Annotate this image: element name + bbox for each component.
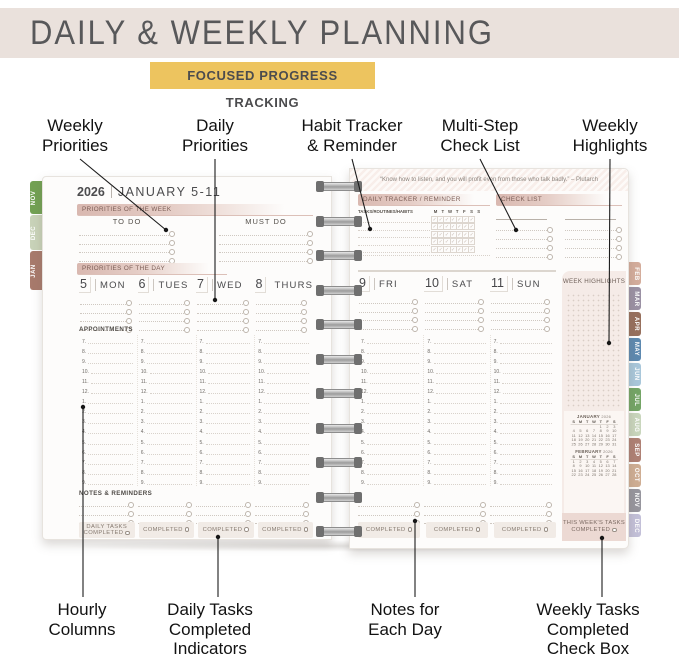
spiral-ring	[316, 320, 362, 329]
priority-line	[219, 245, 307, 254]
notes-line	[358, 498, 414, 507]
mini-calendar-date: 26	[597, 473, 604, 477]
checklist-line	[565, 222, 616, 231]
hour-label: 11.	[361, 379, 368, 385]
hour-writing-line	[88, 353, 133, 354]
hour-writing-line	[206, 484, 251, 485]
month-tab-label: NOV	[31, 190, 37, 205]
day-column: 6TUES	[138, 277, 197, 331]
hour-label: 3.	[494, 419, 498, 425]
daily-tracker-banner: DAILY TRACKER / REMINDER	[358, 194, 490, 206]
writing-line	[139, 314, 185, 323]
hour-row: 9.	[258, 355, 310, 365]
hour-row: 1.	[361, 395, 420, 405]
hour-writing-line	[500, 444, 552, 445]
hour-writing-line	[500, 363, 552, 364]
hour-label: 12.	[82, 389, 89, 395]
hour-label: 1.	[361, 399, 365, 405]
hour-row: 9.	[82, 355, 134, 365]
daily-completed-indicator: COMPLETED	[139, 522, 195, 538]
hour-writing-line	[267, 383, 309, 384]
writing-line	[359, 321, 412, 330]
hour-label: 12.	[494, 389, 501, 395]
hour-writing-line	[434, 464, 486, 465]
hour-label: 7.	[200, 339, 204, 345]
annotation-line: Highlights	[545, 136, 675, 156]
notes-line	[138, 507, 187, 516]
hour-writing-line	[264, 464, 309, 465]
hour-row: 9.	[494, 355, 553, 365]
mustdo-header: MUST DO	[219, 217, 313, 226]
priority-line	[79, 236, 169, 245]
spiral-ring	[316, 286, 362, 295]
hour-label: 5.	[82, 440, 86, 446]
mini-calendar-week: 22232425262728	[567, 473, 621, 477]
annotation-line: Completed	[518, 620, 658, 640]
hour-row: 8.	[141, 345, 193, 355]
hour-writing-line	[206, 363, 251, 364]
hour-label: 9.	[82, 480, 86, 486]
hour-label: 7.	[82, 339, 86, 345]
hour-label: 5.	[361, 440, 365, 446]
header-band: DAILY & WEEKLY PLANNING	[0, 8, 679, 58]
hour-row: 2.	[200, 405, 252, 415]
writing-line	[139, 296, 185, 305]
mini-calendar-date: 31	[611, 442, 618, 446]
mini-calendar-date: 27	[584, 442, 591, 446]
hour-label: 3.	[82, 419, 86, 425]
hour-writing-line	[206, 444, 251, 445]
hour-writing-line	[264, 444, 309, 445]
hour-writing-line	[370, 383, 420, 384]
annotation-weekly-highlights: Weekly Highlights	[545, 116, 675, 155]
annotation-line: Completed	[140, 620, 280, 640]
hour-writing-line	[264, 413, 309, 414]
week-title: 2026 JANUARY 5-11	[77, 185, 221, 199]
hour-writing-line	[436, 373, 485, 374]
month-tab-label: MAR	[633, 291, 639, 306]
hour-row: 9.	[200, 355, 252, 365]
annotation-daily-priorities: Daily Priorities	[150, 116, 280, 155]
hour-writing-line	[370, 393, 419, 394]
priorities-of-week-banner: PRIORITIES OF THE WEEK	[77, 204, 313, 216]
writing-line	[80, 314, 126, 323]
day-header: 5MON	[79, 277, 138, 293]
hour-writing-line	[367, 464, 419, 465]
hour-row: 5.	[494, 435, 553, 445]
writing-line	[491, 304, 544, 313]
hour-writing-line	[434, 454, 486, 455]
daily-tasks-completed-indicator: DAILY TASKSCOMPLETED	[79, 522, 135, 538]
hour-label: 9.	[494, 359, 498, 365]
hour-writing-line	[434, 413, 486, 414]
weekly-tasks-completed-checkbox: THIS WEEK'S TASKS COMPLETED	[562, 513, 626, 541]
hour-label: 10.	[494, 369, 501, 375]
hour-writing-line	[206, 464, 251, 465]
habit-name-line	[358, 231, 430, 238]
hour-writing-line	[434, 484, 486, 485]
habit-name-line	[358, 223, 430, 230]
notes-reminders-label: NOTES & REMINDERS	[79, 490, 152, 497]
hour-writing-line	[147, 454, 192, 455]
hour-row: 12.	[141, 385, 193, 395]
day-number: 10	[424, 276, 443, 292]
hour-label: 7.	[200, 460, 204, 466]
hour-row: 8.	[82, 466, 134, 476]
annotation-line: Hourly	[12, 600, 152, 620]
annotation-weekly-tasks-checkbox: Weekly Tasks Completed Check Box	[518, 600, 658, 655]
hour-label: 8.	[200, 470, 204, 476]
hour-writing-line	[91, 393, 133, 394]
hour-row: 7.	[141, 335, 193, 345]
hour-label: 12.	[361, 389, 368, 395]
day-header: 11SUN	[490, 276, 556, 292]
hour-row: 9.	[141, 476, 193, 486]
habit-extra-line	[358, 255, 490, 256]
hour-row: 6.	[494, 446, 553, 456]
completed-label: COMPLETED	[262, 527, 308, 534]
completed-circle	[185, 527, 190, 532]
hour-writing-line	[367, 474, 419, 475]
hour-row: 3.	[200, 415, 252, 425]
notes-line	[196, 498, 245, 507]
hour-writing-line	[88, 474, 133, 475]
hour-writing-line	[267, 373, 309, 374]
checklist-header-line	[565, 213, 616, 220]
hour-label: 2.	[141, 409, 145, 415]
hour-label: 11.	[82, 379, 89, 385]
annotation-multi-step-check-list: Multi-Step Check List	[415, 116, 545, 155]
todo-list	[79, 227, 175, 262]
hour-row: 2.	[427, 405, 486, 415]
hour-label: 8.	[427, 470, 431, 476]
annotation-line: Indicators	[140, 639, 280, 655]
month-tab-label: APR	[633, 317, 639, 331]
hour-writing-line	[264, 433, 309, 434]
annotation-line: Multi-Step	[415, 116, 545, 136]
writing-line	[139, 322, 185, 331]
completed-label: COMPLETED	[502, 527, 548, 534]
priorities-of-day-banner: PRIORITIES OF THE DAY	[77, 263, 227, 275]
hour-row: 7.	[361, 456, 420, 466]
habit-row: ✓✓✓✓✓✓✓	[358, 246, 490, 253]
day-priority-lines	[490, 292, 556, 330]
hour-row: 12.	[494, 385, 553, 395]
hour-writing-line	[264, 454, 309, 455]
hour-label: 10.	[82, 369, 89, 375]
weekday-initial: T	[439, 209, 446, 214]
notes-column	[490, 498, 556, 524]
hour-writing-line	[500, 484, 552, 485]
completed-circle	[544, 527, 549, 532]
hour-writing-line	[500, 353, 552, 354]
right-day-columns: 9FRI10SAT11SUN	[358, 276, 556, 330]
hour-row: 5.	[258, 435, 310, 445]
habit-name-line	[358, 238, 430, 245]
hour-writing-line	[88, 423, 133, 424]
hour-row: 11.	[141, 375, 193, 385]
day-name: MON	[100, 280, 126, 291]
hour-writing-line	[503, 373, 552, 374]
hour-writing-line	[147, 413, 192, 414]
annotation-line: Notes for	[335, 600, 475, 620]
hour-writing-line	[208, 383, 250, 384]
hour-row: 1.	[494, 395, 553, 405]
mini-calendar-slot: FEBRUARY 2026SMTWTFS12345678910111213141…	[564, 449, 624, 484]
checklist-header-line	[496, 213, 547, 220]
left-notes-rows	[79, 498, 313, 524]
annotation-daily-tasks-completed: Daily Tasks Completed Indicators	[140, 600, 280, 655]
hour-label: 3.	[258, 419, 262, 425]
hour-label: 1.	[82, 399, 86, 405]
hour-row: 9.	[361, 355, 420, 365]
completed-label: COMPLETED	[143, 527, 189, 534]
hour-label: 2.	[200, 409, 204, 415]
hour-writing-line	[434, 444, 486, 445]
hour-writing-line	[503, 393, 552, 394]
hour-row: 1.	[141, 395, 193, 405]
hour-label: 7.	[141, 339, 145, 345]
writing-line	[359, 313, 412, 322]
checklist-line	[565, 249, 616, 258]
writing-line	[256, 314, 302, 323]
habit-row: ✓✓✓✓✓✓✓	[358, 231, 490, 238]
hour-label: 4.	[494, 429, 498, 435]
habit-name-line	[358, 246, 430, 253]
notes-line	[424, 498, 480, 507]
hour-label: 9.	[427, 480, 431, 486]
notes-column	[196, 498, 255, 524]
mini-calendar-date: 22	[570, 473, 577, 477]
hour-row: 7.	[258, 456, 310, 466]
hour-row: 9.	[427, 355, 486, 365]
hour-row: 12.	[361, 385, 420, 395]
hour-writing-line	[434, 423, 486, 424]
hour-label: 6.	[82, 450, 86, 456]
hour-row: 9.	[427, 476, 486, 486]
hour-label: 3.	[141, 419, 145, 425]
writing-line	[425, 321, 478, 330]
writing-line	[80, 296, 126, 305]
notes-line	[424, 507, 480, 516]
annotation-line: Daily Tasks	[140, 600, 280, 620]
year-label: 2026	[77, 185, 105, 199]
hour-writing-line	[147, 444, 192, 445]
hour-writing-line	[434, 474, 486, 475]
right-completed-indicators: COMPLETEDCOMPLETEDCOMPLETED	[358, 522, 556, 538]
month-tab-label: NOV	[633, 493, 639, 508]
completed-circle	[244, 527, 249, 532]
hour-row: 8.	[258, 345, 310, 355]
hour-writing-line	[206, 403, 251, 404]
mini-calendar-slot: JANUARY 2026SMTWTFS123456789101112131415…	[564, 414, 624, 449]
spiral-ring	[316, 217, 362, 226]
hour-row: 4.	[494, 425, 553, 435]
habit-row: ✓✓✓✓✓✓✓	[358, 216, 490, 223]
hour-row: 11.	[82, 375, 134, 385]
hour-row: 2.	[82, 405, 134, 415]
hour-writing-line	[367, 423, 419, 424]
priority-line	[79, 245, 169, 254]
hour-label: 2.	[427, 409, 431, 415]
hour-label: 2.	[361, 409, 365, 415]
hour-writing-line	[264, 423, 309, 424]
habit-name-line	[358, 216, 430, 223]
month-tab-label: DEC	[31, 225, 37, 239]
hour-label: 11.	[258, 379, 265, 385]
left-hourly-columns: 7.8.9.10.11.12.1.2.3.4.5.6.7.8.9.7.8.9.1…	[79, 335, 313, 486]
hour-label: 4.	[200, 429, 204, 435]
hour-row: 3.	[258, 415, 310, 425]
priority-line	[219, 236, 307, 245]
hour-writing-line	[502, 383, 552, 384]
hour-row: 5.	[200, 435, 252, 445]
hour-row: 9.	[141, 355, 193, 365]
hour-row: 7.	[200, 456, 252, 466]
habit-row: ✓✓✓✓✓✓✓	[358, 238, 490, 245]
checklist-line	[496, 231, 547, 240]
hour-label: 11.	[141, 379, 148, 385]
hour-row: 4.	[82, 425, 134, 435]
hour-row: 1.	[427, 395, 486, 405]
hour-label: 5.	[494, 440, 498, 446]
notes-line	[490, 507, 546, 516]
hour-writing-line	[147, 353, 192, 354]
mini-calendar-date: 25	[570, 442, 577, 446]
completed-label: COMPLETED	[434, 527, 480, 534]
habit-checkbox: ✓	[468, 231, 475, 238]
hour-writing-line	[150, 393, 192, 394]
section-divider	[358, 270, 556, 272]
hour-row: 2.	[494, 405, 553, 415]
hour-label: 10.	[141, 369, 148, 375]
hour-label: 6.	[141, 450, 145, 456]
hour-label: 8.	[141, 470, 145, 476]
hour-label: 5.	[141, 440, 145, 446]
hour-row: 11.	[494, 375, 553, 385]
hour-writing-line	[147, 403, 192, 404]
hour-label: 9.	[141, 359, 145, 365]
hour-label: 1.	[494, 399, 498, 405]
planner-left-page: 2026 JANUARY 5-11 PRIORITIES OF THE WEEK…	[42, 176, 332, 540]
hour-writing-line	[500, 464, 552, 465]
hour-writing-line	[500, 413, 552, 414]
day-header: 7WED	[196, 277, 255, 293]
hour-row: 9.	[494, 476, 553, 486]
hour-writing-line	[367, 363, 419, 364]
hour-row: 7.	[361, 335, 420, 345]
hour-label: 11.	[494, 379, 501, 385]
annotation-notes-each-day: Notes for Each Day	[335, 600, 475, 639]
hour-row: 6.	[200, 446, 252, 456]
day-priority-lines	[255, 293, 314, 331]
check-list-banner: CHECK LIST	[496, 194, 622, 206]
hour-row: 8.	[494, 466, 553, 476]
hour-row: 11.	[361, 375, 420, 385]
hour-row: 8.	[494, 345, 553, 355]
habit-tracker-columns-label: TASKS/ROUTINES/HABITS	[358, 209, 430, 214]
hour-label: 7.	[258, 339, 262, 345]
hour-label: 7.	[494, 339, 498, 345]
annotation-line: Check Box	[518, 639, 658, 655]
left-completed-indicators: DAILY TASKSCOMPLETEDCOMPLETEDCOMPLETEDCO…	[79, 522, 313, 538]
priority-line	[219, 227, 307, 236]
weekday-initial: F	[461, 209, 468, 214]
hour-writing-line	[264, 403, 309, 404]
completed-circle	[408, 527, 413, 532]
hour-writing-line	[434, 363, 486, 364]
hourly-column: 7.8.9.10.11.12.1.2.3.4.5.6.7.8.9.	[423, 335, 489, 486]
hour-row: 3.	[494, 415, 553, 425]
writing-line	[80, 305, 126, 314]
month-tab-label: MAY	[633, 342, 639, 356]
day-number: 6	[138, 277, 150, 293]
hour-label: 9.	[141, 480, 145, 486]
hour-row: 12.	[427, 385, 486, 395]
completed-circle	[612, 528, 617, 533]
hourly-column: 7.8.9.10.11.12.1.2.3.4.5.6.7.8.9.	[137, 335, 196, 486]
completed-text: COMPLETED	[571, 527, 610, 533]
hour-writing-line	[264, 484, 309, 485]
hour-writing-line	[206, 433, 251, 434]
hour-row: 10.	[141, 365, 193, 375]
month-tab-label: OCT	[633, 468, 639, 482]
hour-label: 4.	[82, 429, 86, 435]
hour-writing-line	[500, 403, 552, 404]
hour-label: 12.	[258, 389, 265, 395]
hour-row: 11.	[258, 375, 310, 385]
hour-row: 7.	[141, 456, 193, 466]
hour-writing-line	[88, 454, 133, 455]
completed-circle	[304, 527, 309, 532]
hour-label: 4.	[141, 429, 145, 435]
hour-writing-line	[147, 343, 192, 344]
hour-label: 12.	[427, 389, 434, 395]
hour-row: 11.	[427, 375, 486, 385]
hour-writing-line	[206, 353, 251, 354]
date-range-label: JANUARY 5-11	[118, 185, 221, 199]
hour-label: 9.	[258, 359, 262, 365]
hour-row: 12.	[258, 385, 310, 395]
notes-column	[79, 498, 138, 524]
hour-label: 7.	[82, 460, 86, 466]
weekly-tasks-label: THIS WEEK'S TASKS	[563, 520, 625, 527]
weekday-initial: W	[446, 209, 453, 214]
weekday-initial: S	[468, 209, 475, 214]
writing-line	[359, 304, 412, 313]
hour-writing-line	[264, 363, 309, 364]
mini-calendar-date: 27	[604, 473, 611, 477]
hour-writing-line	[147, 363, 192, 364]
mini-calendar: JANUARY 2026SMTWTFS123456789101112131415…	[567, 414, 621, 447]
hour-label: 8.	[82, 470, 86, 476]
completed-label: COMPLETED	[366, 527, 412, 534]
hour-row: 2.	[361, 405, 420, 415]
hour-row: 3.	[82, 415, 134, 425]
hourly-column: 7.8.9.10.11.12.1.2.3.4.5.6.7.8.9.	[196, 335, 255, 486]
hour-writing-line	[91, 373, 133, 374]
mini-calendar-date: 23	[577, 473, 584, 477]
day-number: 5	[79, 277, 91, 293]
writing-line	[197, 314, 243, 323]
annotation-weekly-priorities: Weekly Priorities	[10, 116, 140, 155]
hour-label: 8.	[258, 470, 262, 476]
writing-line	[197, 322, 243, 331]
hour-row: 4.	[361, 425, 420, 435]
month-tab-label: SEP	[633, 443, 639, 457]
day-column: 9FRI	[358, 276, 424, 330]
hour-label: 7.	[258, 460, 262, 466]
